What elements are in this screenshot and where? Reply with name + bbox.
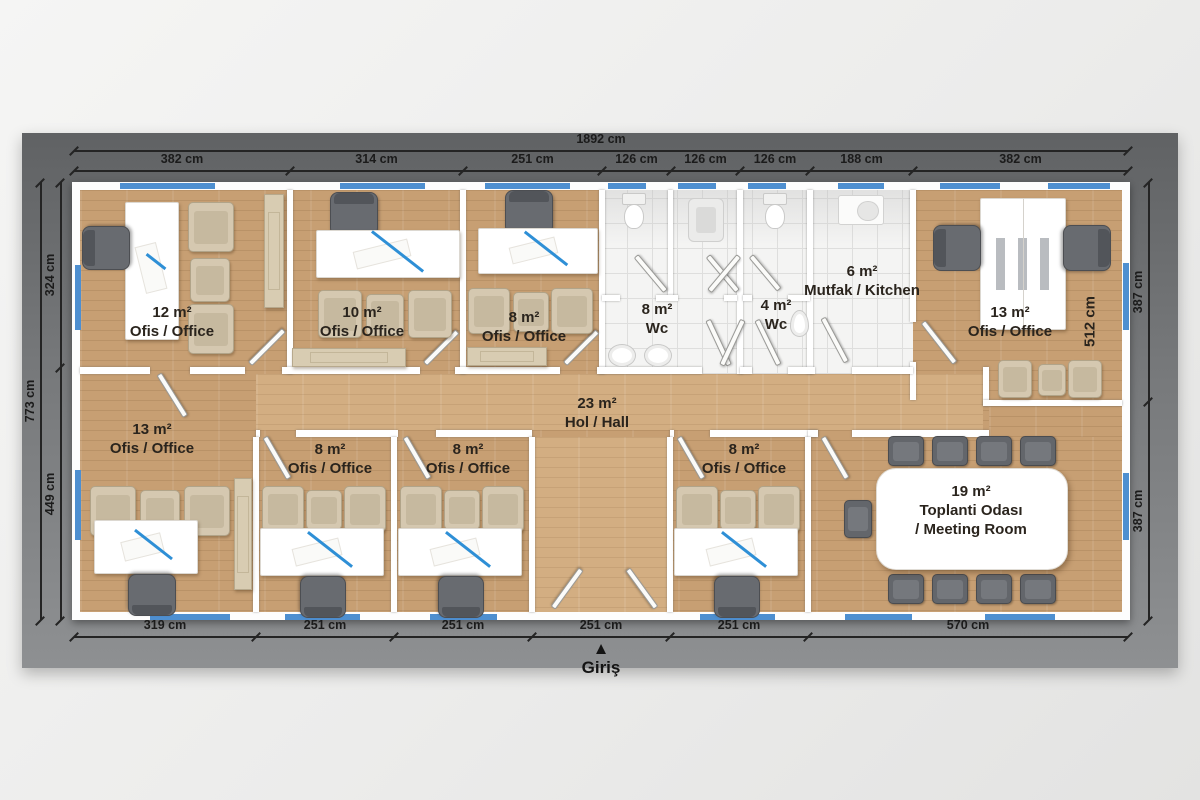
room-label-line: 12 m² [130,303,214,322]
sink-round [608,344,636,367]
room-label-line: Ofis / Office [130,322,214,341]
room-label-10: 8 m²Ofis / Office [426,440,510,478]
room-label-line: 13 m² [968,303,1052,322]
room-label-line: 8 m² [288,440,372,459]
room-label-line: 13 m² [110,420,194,439]
floor-plan-stage: 12 m²Ofis / Office10 m²Ofis / Office8 m²… [0,0,1200,800]
toilet [622,193,646,229]
mchair [932,574,968,604]
window [1048,183,1110,189]
dim-bottom-segments-label: 251 cm [304,618,346,632]
dim-top-segments-label: 382 cm [161,152,203,166]
room-label-line: 8 m² [702,440,786,459]
room-label-line: Hol / Hall [565,413,629,432]
room-label-7: 23 m²Hol / Hall [565,394,629,432]
interior-wall [597,367,702,374]
room-label-line: 19 m² [915,482,1027,501]
dim-top-segments-label: 188 cm [840,152,882,166]
gchair [676,486,718,532]
ochair [128,574,176,616]
mchair [976,574,1012,604]
dim-right-segments-label: 387 cm [1131,489,1145,531]
room-label-13: 512 cm [1081,296,1100,347]
window [75,470,81,540]
room-label-line: Mutfak / Kitchen [804,281,920,300]
interior-wall [391,437,397,612]
room-label-12: 19 m²Toplanti Odası/ Meeting Room [915,482,1027,539]
desk [316,230,460,278]
sink-round [644,344,672,367]
interior-wall [852,367,913,374]
interior-wall [740,367,752,374]
gchair [758,486,800,532]
dim-top-segments-label: 126 cm [615,152,657,166]
room-label-line: Wc [761,315,792,334]
interior-wall [670,430,674,437]
window [120,183,215,189]
interior-wall [253,437,259,612]
mchair [888,574,924,604]
ochair [300,576,346,618]
credenza [292,348,406,367]
dim-bottom-segments [74,636,1128,638]
window [845,614,912,620]
interior-wall [436,430,532,437]
dim-right-segments-label: 387 cm [1131,270,1145,312]
room-label-line: Ofis / Office [288,459,372,478]
dim-left-total [40,182,42,620]
gchair [344,486,386,532]
dim-left-segments-label: 449 cm [43,472,57,514]
dim-top-total [74,150,1128,152]
window [940,183,1000,189]
window [75,265,81,330]
gchair [262,486,304,532]
gchair [482,486,524,532]
interior-wall [529,437,535,612]
mchair [888,436,924,466]
window [485,183,570,189]
window [838,183,884,189]
room-label-line: Ofis / Office [702,459,786,478]
floor-meeting-strip [989,406,1122,437]
gchair [444,490,480,530]
window [678,183,716,189]
ochair [714,576,760,618]
gchair [306,490,342,530]
ochair [82,226,130,270]
room-label-5: 6 m²Mutfak / Kitchen [804,262,920,300]
interior-wall [805,437,811,612]
interior-wall [668,190,673,298]
gchair [998,360,1032,398]
dim-top-total-label: 1892 cm [576,132,625,146]
gchair [720,490,756,530]
interior-wall [737,190,743,374]
room-label-line: Ofis / Office [968,322,1052,341]
dim-left-segments [60,182,62,620]
room-label-1: 10 m²Ofis / Office [320,303,404,341]
window [1123,473,1129,540]
interior-wall [282,367,420,374]
room-label-line: / Meeting Room [915,520,1027,539]
gchair [400,486,442,532]
dim-top-segments-label: 314 cm [355,152,397,166]
interior-wall [455,367,560,374]
window [608,183,646,189]
room-label-8: 13 m²Ofis / Office [110,420,194,458]
squat [688,198,724,242]
dim-bottom-segments-label: 251 cm [718,618,760,632]
dim-top-segments-label: 251 cm [511,152,553,166]
mchair [976,436,1012,466]
window [340,183,425,189]
gchair [1038,364,1066,396]
room-label-3: 8 m²Wc [642,300,673,338]
gchair [1068,360,1102,398]
interior-wall [602,295,620,301]
interior-wall [80,367,150,374]
dim-bottom-segments-label: 251 cm [580,618,622,632]
interior-wall [667,437,673,612]
window [1123,263,1129,330]
room-label-line: 23 m² [565,394,629,413]
room-label-line: 512 cm [1081,296,1100,347]
interior-wall [710,430,818,437]
interior-wall [296,430,398,437]
sink-kitchen [838,195,884,225]
mchair [844,500,872,538]
gchair [188,202,234,252]
room-label-4: 4 m²Wc [761,296,792,334]
interior-wall [724,295,737,301]
dim-left-total-label: 773 cm [23,380,37,422]
interior-wall [256,430,260,437]
interior-wall [460,190,466,374]
cabinet [264,194,284,308]
sink-wall [790,310,809,337]
interior-wall [983,400,1122,406]
interior-wall [190,367,245,374]
floor-entry-corridor [532,437,670,612]
room-label-line: 8 m² [426,440,510,459]
mchair [1020,436,1056,466]
interior-wall [808,430,818,437]
entrance-label: Giriş [582,658,621,678]
window [985,614,1055,620]
room-label-2: 8 m²Ofis / Office [482,308,566,346]
room-label-0: 12 m²Ofis / Office [130,303,214,341]
interior-wall [743,295,752,301]
mchair [1020,574,1056,604]
interior-wall [788,367,815,374]
window [748,183,786,189]
toilet [763,193,787,229]
entrance-arrow-icon: ▲ [593,640,610,657]
room-label-line: 8 m² [642,300,673,319]
dim-bottom-segments-label: 251 cm [442,618,484,632]
gchair [190,258,230,302]
mchair [932,436,968,466]
dim-top-segments-label: 126 cm [754,152,796,166]
interior-wall [287,190,293,374]
room-label-line: 4 m² [761,296,792,315]
room-label-line: Toplanti Odası [915,501,1027,520]
dim-top-segments-label: 382 cm [999,152,1041,166]
interior-wall [599,190,605,374]
desk [260,528,384,576]
desk [674,528,798,576]
desk [398,528,522,576]
room-label-9: 8 m²Ofis / Office [288,440,372,478]
dim-bottom-segments-label: 319 cm [144,618,186,632]
room-label-line: Wc [642,319,673,338]
room-label-line: Ofis / Office [110,439,194,458]
room-label-line: 6 m² [804,262,920,281]
room-label-line: 8 m² [482,308,566,327]
ochair [438,576,484,618]
gchair [408,290,452,338]
dim-top-segments-label: 126 cm [684,152,726,166]
desk [478,228,598,274]
dim-bottom-segments-label: 570 cm [947,618,989,632]
room-label-6: 13 m²Ofis / Office [968,303,1052,341]
ochair [1063,225,1111,271]
interior-wall [910,190,916,322]
credenza [467,347,547,366]
dim-left-segments-label: 324 cm [43,253,57,295]
room-label-line: Ofis / Office [320,322,404,341]
room-label-11: 8 m²Ofis / Office [702,440,786,478]
room-label-line: 10 m² [320,303,404,322]
desk [94,520,198,574]
room-label-line: Ofis / Office [482,327,566,346]
ochair [933,225,981,271]
room-label-line: Ofis / Office [426,459,510,478]
cabinet [234,478,252,590]
